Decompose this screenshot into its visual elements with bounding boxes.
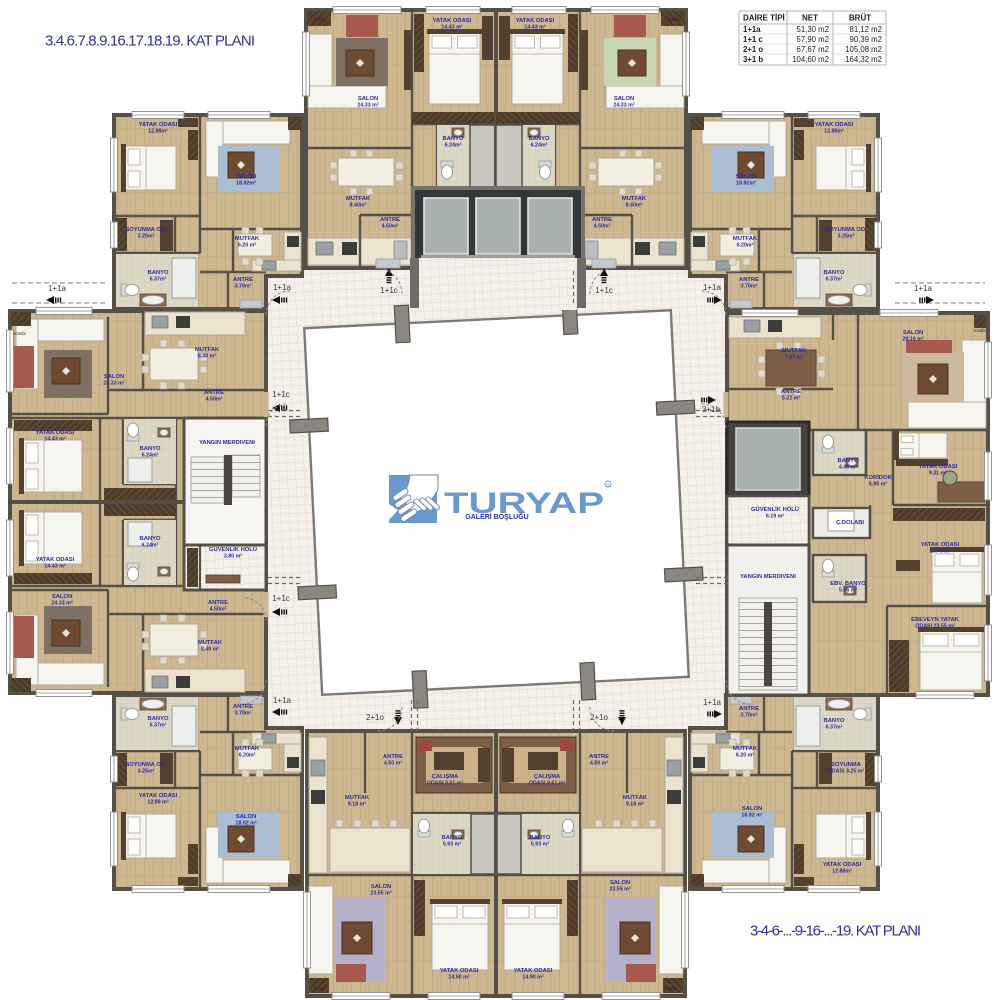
svg-text:1+1c: 1+1c xyxy=(272,390,290,399)
svg-text:3+1 b: 3+1 b xyxy=(743,55,763,64)
svg-text:kombi: kombi xyxy=(14,331,25,336)
svg-text:SALON18.92 m²: SALON18.92 m² xyxy=(235,814,256,826)
svg-text:ANTRE3.70m²: ANTRE3.70m² xyxy=(739,706,759,718)
svg-text:GALERİ BOŞLUĞU: GALERİ BOŞLUĞU xyxy=(465,512,528,521)
svg-text:SALON28.19 m²: SALON28.19 m² xyxy=(902,330,923,342)
svg-text:57,90 m2: 57,90 m2 xyxy=(796,35,829,44)
svg-text:BANYO6.24m²: BANYO6.24m² xyxy=(443,136,464,148)
svg-text:SALON23.55 m²: SALON23.55 m² xyxy=(609,880,630,892)
svg-text:SALON24.33 m²: SALON24.33 m² xyxy=(357,96,378,108)
svg-text:105,08 m2: 105,08 m2 xyxy=(845,45,882,54)
svg-text:kombi: kombi xyxy=(664,986,675,991)
svg-text:BANYO6.37m²: BANYO6.37m² xyxy=(148,270,169,282)
svg-text:1+1a: 1+1a xyxy=(48,284,67,293)
svg-text:1+1a: 1+1a xyxy=(914,284,933,293)
svg-text:2+1 o: 2+1 o xyxy=(743,45,763,54)
svg-text:Ç.DOLABI: Ç.DOLABI xyxy=(836,520,864,526)
svg-text:1+1 c: 1+1 c xyxy=(743,35,763,44)
svg-text:ANTRE3.70m²: ANTRE3.70m² xyxy=(739,277,759,289)
svg-text:BRÜT: BRÜT xyxy=(849,14,871,23)
svg-text:BANYO4.45 m²: BANYO4.45 m² xyxy=(838,458,859,470)
svg-text:51,30 m2: 51,30 m2 xyxy=(796,25,829,34)
svg-text:kombi: kombi xyxy=(314,17,325,22)
svg-text:BANYO6.37m²: BANYO6.37m² xyxy=(824,718,845,730)
svg-text:YANGIN MERDIVENI: YANGIN MERDIVENI xyxy=(199,440,255,446)
svg-text:2+1o: 2+1o xyxy=(366,713,385,722)
svg-text:3-4-6-...-9-16-...-19. KAT PLA: 3-4-6-...-9-16-...-19. KAT PLANI xyxy=(750,923,921,940)
svg-text:ANTRE3.70m²: ANTRE3.70m² xyxy=(233,277,253,289)
svg-text:ÇALIŞMAODASI 9.61 m²: ÇALIŞMAODASI 9.61 m² xyxy=(427,774,464,786)
svg-text:BANYO6.24m²: BANYO6.24m² xyxy=(140,446,161,458)
svg-text:ANTRE4.50 m²: ANTRE4.50 m² xyxy=(383,754,403,766)
svg-text:ANTRE4.50m²: ANTRE4.50m² xyxy=(592,217,612,229)
svg-text:SALON24.33 m²: SALON24.33 m² xyxy=(613,96,634,108)
svg-text:ANTRE4.50m²: ANTRE4.50m² xyxy=(204,390,224,402)
svg-text:BANYO6.37m²: BANYO6.37m² xyxy=(824,270,845,282)
svg-text:kombi: kombi xyxy=(668,17,679,22)
svg-text:ANTRE4.50m²: ANTRE4.50m² xyxy=(208,600,228,612)
svg-text:1+1c: 1+1c xyxy=(380,286,398,295)
svg-text:SALON24.33 m²: SALON24.33 m² xyxy=(103,374,124,386)
svg-text:ÇALIŞMAODASI 9.61 m²: ÇALIŞMAODASI 9.61 m² xyxy=(529,774,566,786)
svg-text:BANYO6.24m²: BANYO6.24m² xyxy=(140,536,161,548)
svg-text:1+1a: 1+1a xyxy=(703,698,722,707)
svg-text:BANYO5.93 m²: BANYO5.93 m² xyxy=(442,835,463,847)
svg-text:3.4.6.7.8.9.16.17.18.19. KAT P: 3.4.6.7.8.9.16.17.18.19. KAT PLANI xyxy=(45,33,255,50)
svg-text:90,39 m2: 90,39 m2 xyxy=(849,35,882,44)
svg-text:SALON23.55 m²: SALON23.55 m² xyxy=(370,884,391,896)
svg-text:ANTRE5.22 m²: ANTRE5.22 m² xyxy=(781,389,801,401)
svg-text:81,12 m2: 81,12 m2 xyxy=(849,25,882,34)
svg-text:SOYUNMAODASI 3.25 m²: SOYUNMAODASI 3.25 m² xyxy=(828,762,865,774)
svg-text:SALON18.92 m²: SALON18.92 m² xyxy=(741,806,762,818)
svg-text:BANYO6.24m²: BANYO6.24m² xyxy=(529,136,550,148)
svg-text:1+1c: 1+1c xyxy=(595,286,613,295)
svg-text:1+1c: 1+1c xyxy=(272,594,290,603)
svg-text:NET: NET xyxy=(802,14,818,23)
svg-text:BANYO5.93 m²: BANYO5.93 m² xyxy=(530,835,551,847)
svg-text:BANYO6.37m²: BANYO6.37m² xyxy=(148,716,169,728)
svg-text:kombi: kombi xyxy=(314,986,325,991)
svg-text:EBEVEYN YATAKODASI 23.55 m²: EBEVEYN YATAKODASI 23.55 m² xyxy=(911,617,960,629)
svg-text:kombi: kombi xyxy=(974,328,985,333)
svg-text:YANGIN MERDIVENI: YANGIN MERDIVENI xyxy=(740,574,796,580)
svg-text:1+1a: 1+1a xyxy=(703,283,722,292)
svg-text:SALON24.33 m²: SALON24.33 m² xyxy=(51,594,72,606)
svg-text:1+1a: 1+1a xyxy=(743,25,761,34)
svg-text:67,67 m2: 67,67 m2 xyxy=(796,45,829,54)
svg-text:164,32 m2: 164,32 m2 xyxy=(845,55,882,64)
svg-text:ANTRE4.50m²: ANTRE4.50m² xyxy=(380,217,400,229)
svg-text:SALON18.92m²: SALON18.92m² xyxy=(736,174,756,186)
svg-text:ANTRE4.50 m²: ANTRE4.50 m² xyxy=(589,754,609,766)
svg-text:104,60 m2: 104,60 m2 xyxy=(792,55,829,64)
svg-text:DAİRE TİPİ: DAİRE TİPİ xyxy=(743,14,785,23)
svg-text:1+1a: 1+1a xyxy=(273,696,292,705)
svg-text:ANTRE3.70m²: ANTRE3.70m² xyxy=(233,704,253,716)
svg-text:SALON18.92m²: SALON18.92m² xyxy=(236,174,256,186)
